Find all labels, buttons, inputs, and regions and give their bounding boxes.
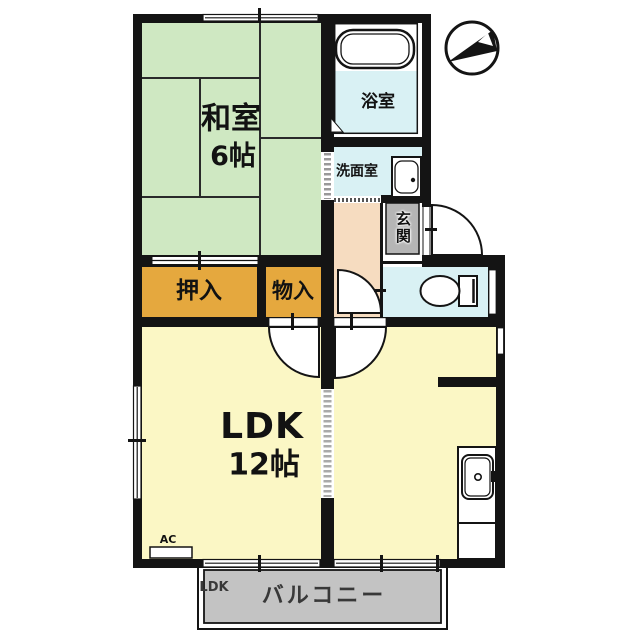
storage-floor: [266, 267, 321, 317]
balcony-deck: [204, 570, 441, 623]
ac-unit-box: [150, 547, 192, 558]
kitchen-sink-icon: [458, 447, 496, 559]
floor-plan-drawing: [0, 0, 640, 640]
washbasin-icon: [392, 157, 421, 197]
toilet-window: [489, 270, 496, 314]
bath-floor: [336, 71, 417, 133]
toilet-icon: [421, 276, 478, 306]
bathtub-icon: [336, 30, 414, 68]
entrance-floor: [386, 203, 419, 254]
hallway-door-opening: [334, 318, 386, 326]
kitchen-side-window: [498, 328, 504, 354]
floor-plan: 和室 6帖 浴室 洗面室 玄関 押入 物入 LDK 12帖 AC LDK バルコ…: [0, 0, 640, 640]
compass-icon: [446, 22, 498, 74]
closet-floor: [142, 267, 257, 317]
balcony: [197, 568, 448, 629]
